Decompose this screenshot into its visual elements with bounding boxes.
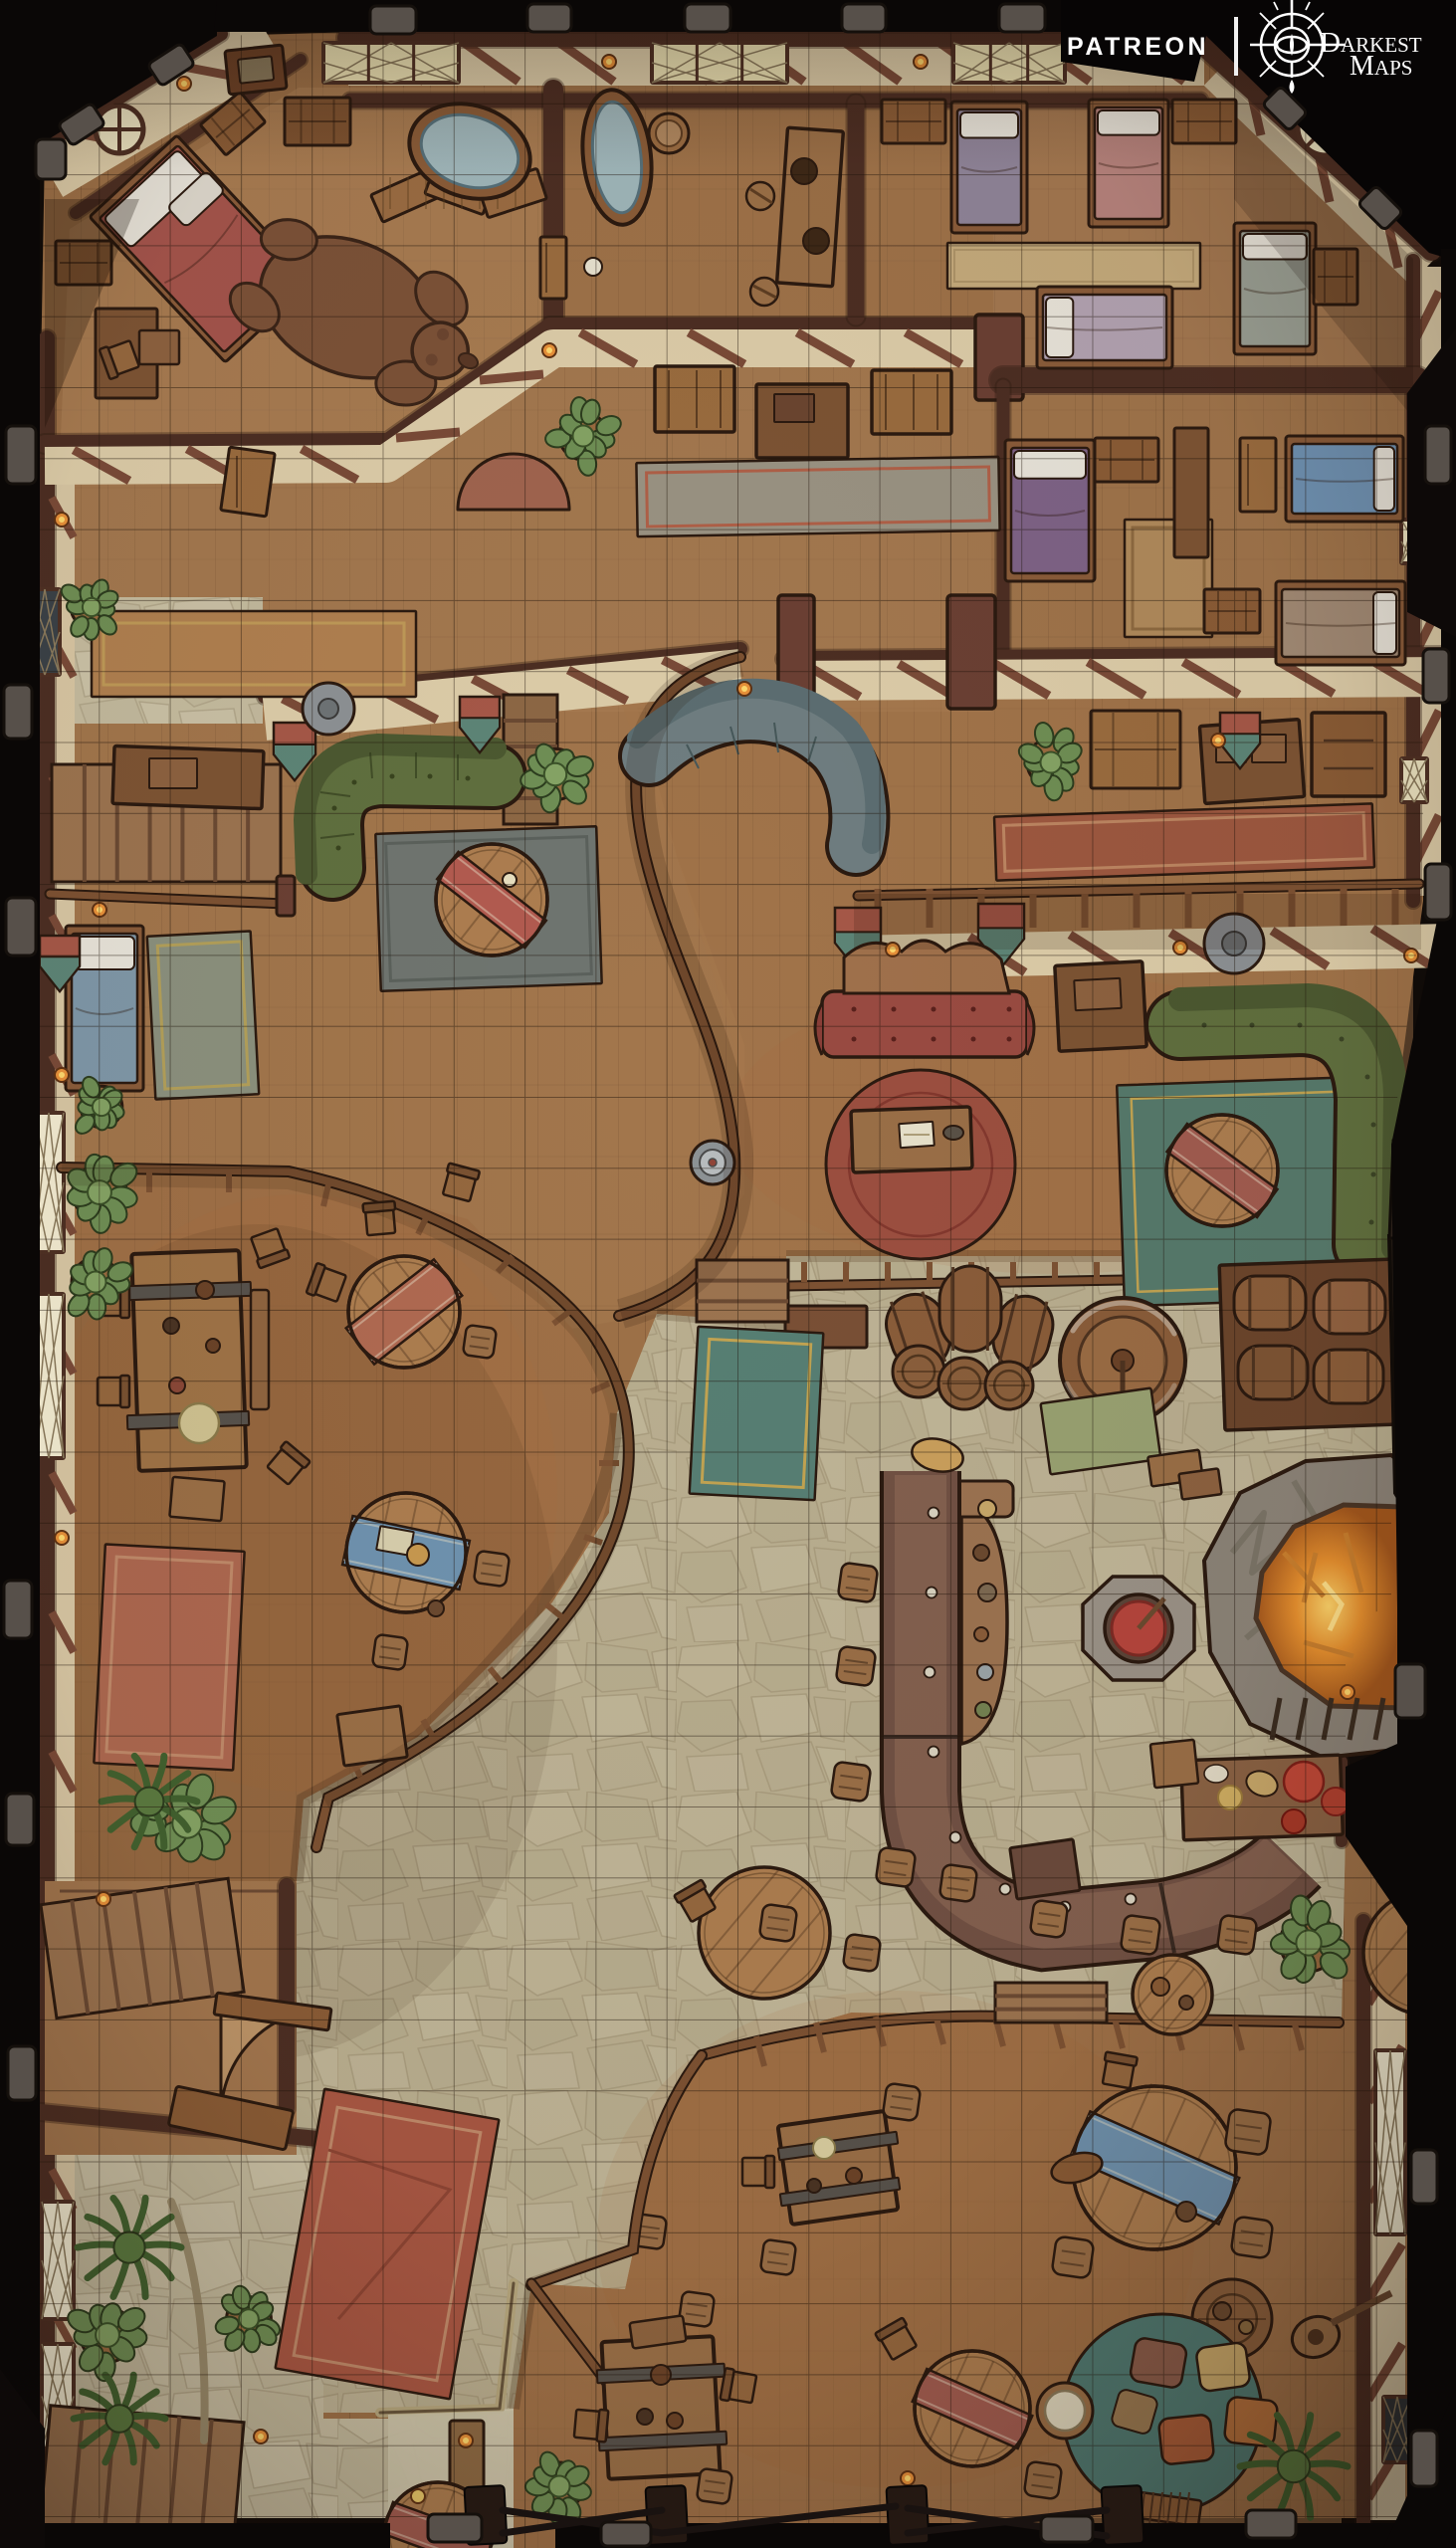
svg-text:MAPS: MAPS	[1350, 51, 1412, 82]
svg-text:PATREON: PATREON	[1067, 33, 1209, 61]
